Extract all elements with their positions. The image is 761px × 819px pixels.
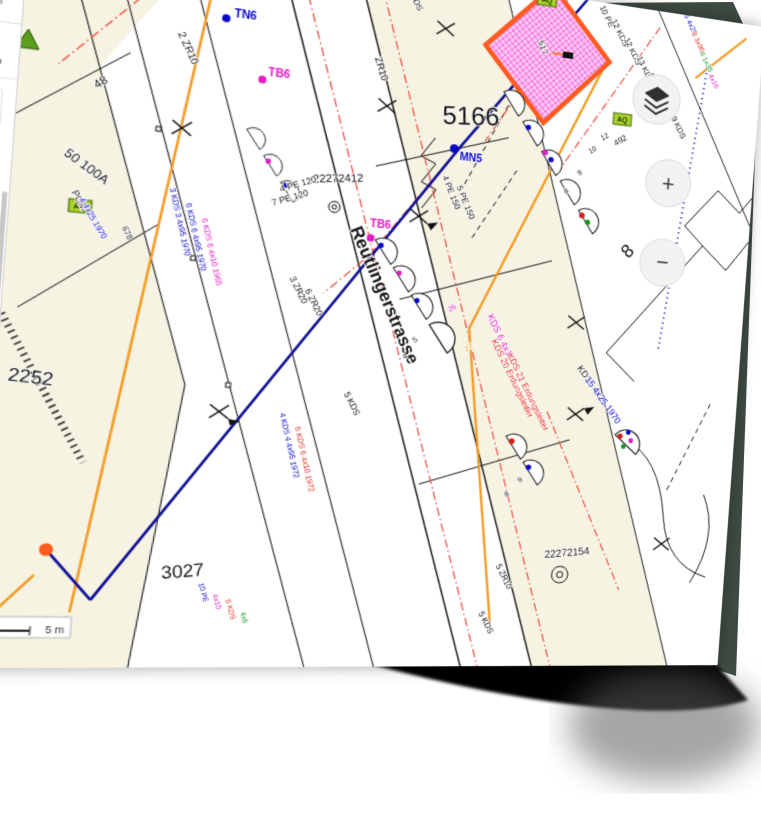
map-label: 12 [599, 131, 610, 143]
map-label: 8 [617, 240, 638, 262]
map-label: 4x6 [238, 611, 248, 624]
map-label: 10 [587, 144, 598, 156]
zoom-in-button[interactable]: + [644, 157, 692, 209]
map-label: 6 1x35 [698, 50, 714, 73]
map-label: 5 KDS [476, 610, 495, 636]
zoom-in-label: + [661, 172, 675, 198]
map-label: 2 ZR10 [175, 31, 201, 67]
map-label: 9 [576, 168, 584, 178]
map-label: 492 [612, 133, 628, 148]
app-window: Eigenschaften Klonen Verbinden Abwählen … [0, 0, 761, 670]
shadow-tail [568, 670, 760, 782]
op-aktualisieren[interactable]: Aktualisieren [0, 23, 18, 68]
map-label: 22272412 [313, 172, 364, 185]
map-area: AQAQAQ 30264850 100A67822523027516684922… [0, 0, 761, 668]
perspective-wrapper: Eigenschaften Klonen Verbinden Abwählen … [0, 0, 761, 670]
map-label: TB6 [268, 66, 291, 81]
svg-text:AQ: AQ [617, 115, 628, 125]
map-label: 5166 [442, 102, 500, 132]
map-label: TB6 [370, 218, 392, 232]
map-label: 3027 [161, 559, 205, 583]
scale-bar: 5 m [0, 617, 71, 638]
mockup-stage: { "app": { "backdrop_color": "#3d4a41", … [0, 0, 761, 819]
map-label: TN6 [234, 8, 257, 24]
tab-label: Verbinden [0, 0, 3, 7]
zoom-out-button[interactable]: − [638, 237, 686, 288]
op-label: Aktualisieren [0, 49, 2, 67]
map-label: 4x16 [707, 72, 721, 90]
map-label: MN5 [459, 151, 482, 165]
map-label: 10 PE [196, 582, 209, 603]
map-canvas[interactable]: AQAQAQ 30264850 100A67822523027516684922… [0, 0, 761, 668]
map-label: 5 KDS [342, 390, 363, 417]
aq-badge: AQ [613, 113, 632, 127]
scale-label: 5 m [45, 625, 65, 637]
map-label: 6 KDS [223, 599, 236, 621]
map-label: 4x10 [210, 593, 222, 610]
zoom-out-label: − [655, 250, 669, 276]
